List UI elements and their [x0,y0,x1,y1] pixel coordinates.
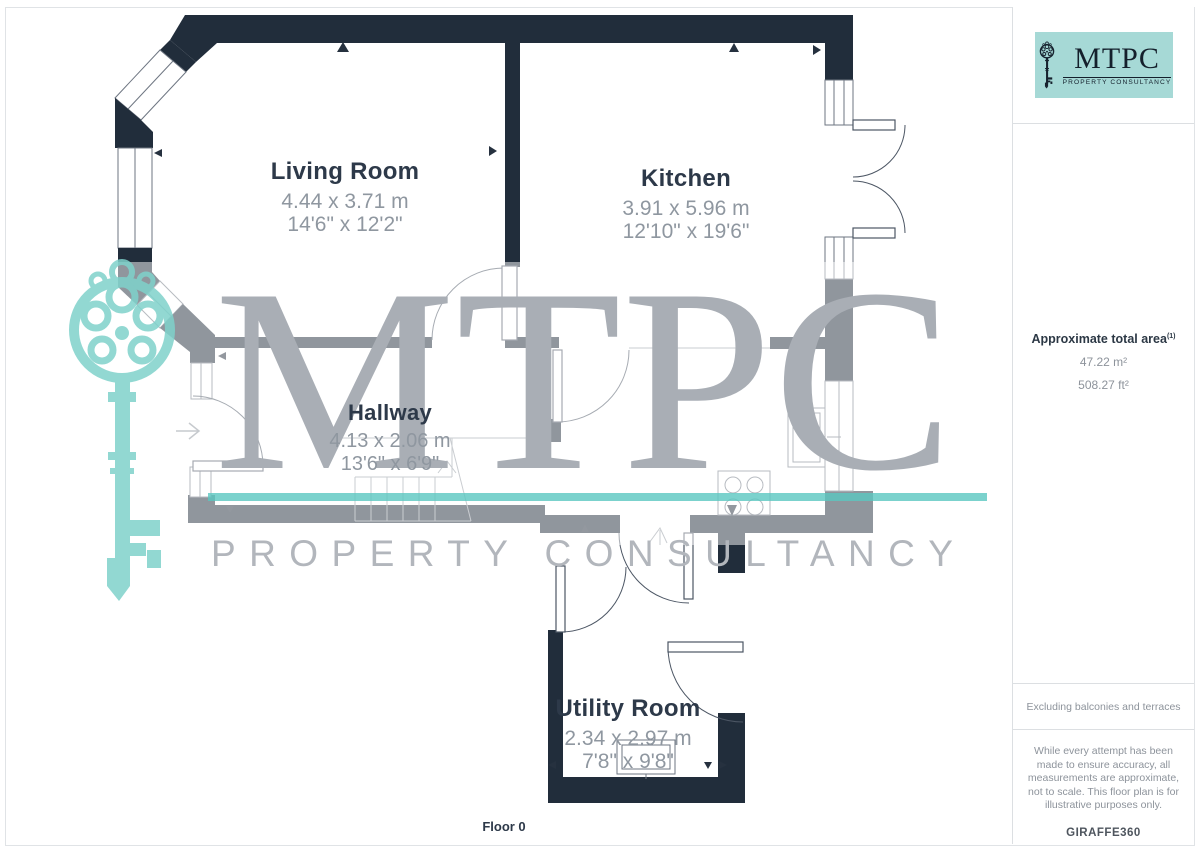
total-area-title: Approximate total area(1) [1013,332,1194,346]
brand-logo: MTPC PROPERTY CONSULTANCY [1035,32,1173,98]
room-label-kitchen: Kitchen 3.91 x 5.96 m 12'10" x 19'6" [566,165,806,243]
logo-text: MTPC PROPERTY CONSULTANCY [1063,44,1172,87]
logo-key-icon [1036,38,1058,92]
floorplan-page: MTPC PROPERTY CONSULTANCY Living Room 4.… [0,0,1200,849]
hallway-dim-m: 4.13 x 2.06 m [270,430,510,453]
disclaimer-text: While every attempt has been made to ens… [1013,745,1194,813]
utility-room-dim-m: 2.34 x 2.97 m [508,727,748,750]
kitchen-dim-ft: 12'10" x 19'6" [566,220,806,243]
room-label-hallway: Hallway 4.13 x 2.06 m 13'6" x 6'9" [270,400,510,476]
info-sidebar: MTPC PROPERTY CONSULTANCY Approximate to… [1012,7,1194,844]
watermark-brand-text: MTPC [214,235,954,525]
kitchen-name: Kitchen [566,165,806,193]
disclaimer-section: While every attempt has been made to ens… [1013,745,1194,839]
kitchen-french-doors [853,120,905,238]
living-room-dim-ft: 14'6" x 12'2" [225,213,465,236]
total-area-ft2: 508.27 ft² [1013,378,1194,392]
living-room-name: Living Room [225,158,465,186]
total-area-title-text: Approximate total area [1031,332,1166,346]
total-area-section: Approximate total area(1) 47.22 m² 508.2… [1013,332,1194,392]
logo-brand: MTPC [1074,44,1160,74]
hallway-name: Hallway [270,400,510,426]
watermark-underline [208,493,987,501]
room-label-living-room: Living Room 4.44 x 3.71 m 14'6" x 12'2" [225,158,465,236]
kitchen-dim-m: 3.91 x 5.96 m [566,197,806,220]
living-room-dim-m: 4.44 x 3.71 m [225,190,465,213]
total-area-superscript: (1) [1167,333,1176,340]
utility-room-name: Utility Room [508,695,748,723]
provider-label: GIRAFFE360 [1013,827,1194,839]
utility-room-dim-ft: 7'8" x 9'8" [508,750,748,773]
exclusion-note: Excluding balconies and terraces [1026,701,1180,713]
total-area-m2: 47.22 m² [1013,355,1194,369]
room-label-utility-room: Utility Room 2.34 x 2.97 m 7'8" x 9'8" [508,695,748,773]
utility-inner-door [556,566,626,632]
logo-section: MTPC PROPERTY CONSULTANCY [1013,7,1194,124]
exclusion-note-section: Excluding balconies and terraces [1013,683,1194,730]
logo-tagline: PROPERTY CONSULTANCY [1063,77,1172,87]
watermark: MTPC PROPERTY CONSULTANCY [74,235,990,601]
floor-label: Floor 0 [404,819,604,834]
hallway-dim-ft: 13'6" x 6'9" [270,453,510,476]
